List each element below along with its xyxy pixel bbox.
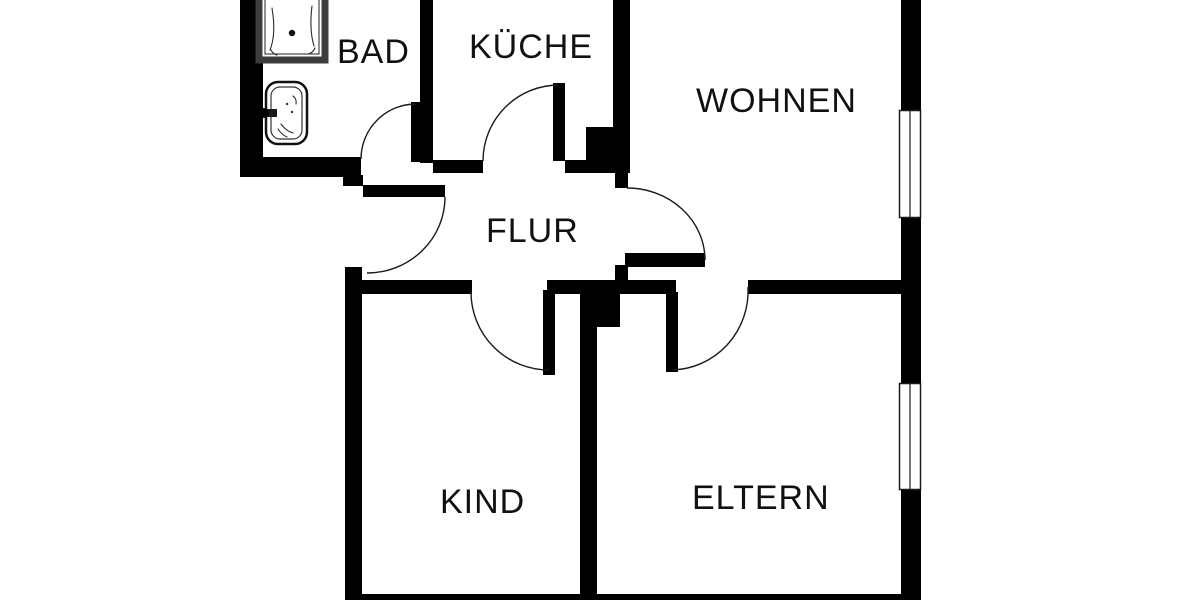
bathtub-icon	[259, 0, 325, 60]
wall	[748, 280, 921, 294]
room-label-eltern: ELTERN	[692, 479, 830, 517]
sink-icon	[259, 82, 307, 144]
floor-plan-drawing: BAD KÜCHE WOHNEN FLUR KIND ELTERN	[0, 0, 1200, 600]
wall	[901, 0, 921, 110]
eltern-door-leaf	[666, 292, 678, 372]
wall	[580, 293, 597, 600]
wall	[345, 594, 921, 600]
wall	[613, 0, 630, 130]
room-label-wohnen: WOHNEN	[696, 82, 857, 120]
bad-door-leaf	[411, 102, 420, 162]
eltern-door-arc	[672, 287, 748, 370]
floor-plan: BAD KÜCHE WOHNEN FLUR KIND ELTERN	[0, 0, 1200, 600]
room-label-kind: KIND	[440, 483, 525, 521]
room-label-flur: FLUR	[486, 212, 579, 250]
wall	[615, 265, 628, 282]
wohnen-door-arc	[627, 188, 705, 260]
wall	[901, 218, 921, 383]
window-icon	[900, 111, 921, 218]
room-label-bad: BAD	[337, 33, 410, 71]
wall	[420, 0, 433, 163]
wall	[615, 173, 628, 188]
wall	[586, 127, 630, 173]
kueche-door-arc	[483, 85, 559, 161]
kind-door-arc	[471, 292, 549, 370]
wall	[343, 175, 363, 186]
wall	[901, 490, 921, 600]
wohnen-door-leaf	[625, 253, 705, 267]
bad-door-arc	[361, 104, 415, 159]
kueche-door-leaf	[553, 83, 565, 161]
wall	[240, 157, 361, 177]
wall	[433, 160, 483, 173]
wall	[345, 267, 362, 600]
room-label-kueche: KÜCHE	[469, 28, 593, 66]
entrance-door-leaf	[363, 185, 445, 197]
window-icon	[900, 384, 921, 490]
wall	[345, 280, 472, 294]
kind-door-leaf	[543, 290, 555, 375]
entrance-door-arc	[367, 197, 445, 273]
